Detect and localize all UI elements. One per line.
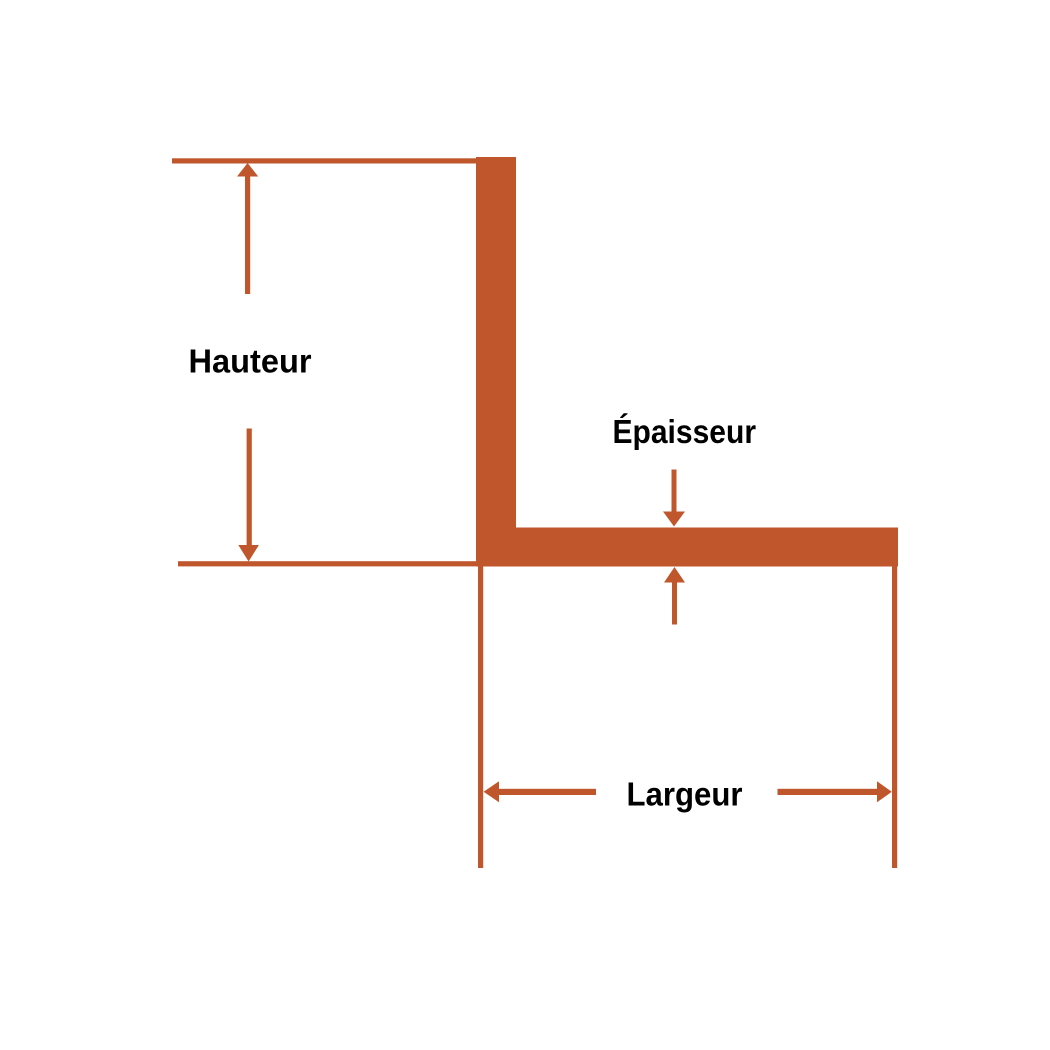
svg-text:Largeur: Largeur	[627, 776, 743, 813]
svg-text:Hauteur: Hauteur	[189, 343, 312, 380]
svg-text:Épaisseur: Épaisseur	[613, 413, 757, 450]
